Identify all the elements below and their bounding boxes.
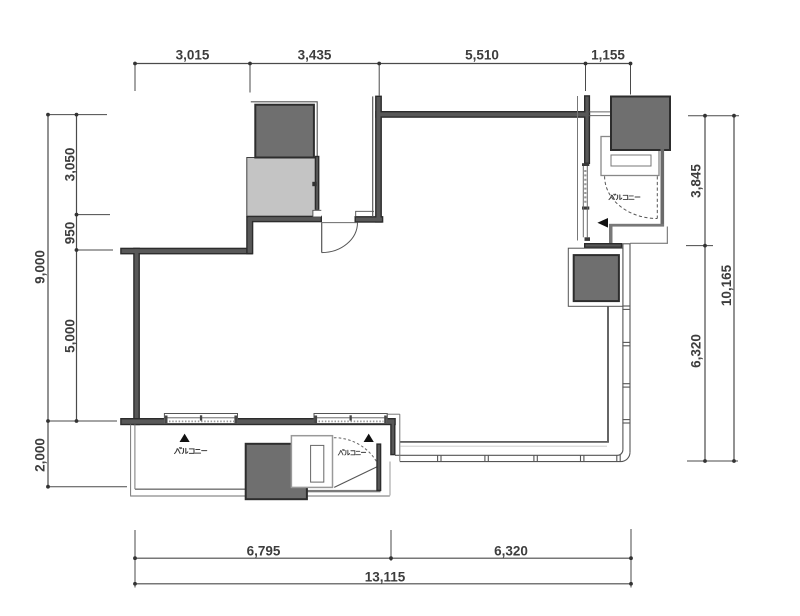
svg-text:3,845: 3,845 [689,164,704,198]
svg-text:5,510: 5,510 [465,48,499,63]
svg-text:3,015: 3,015 [176,48,210,63]
svg-text:3,435: 3,435 [298,48,332,63]
svg-text:9,000: 9,000 [32,250,47,284]
svg-text:10,165: 10,165 [719,264,734,306]
svg-text:3,050: 3,050 [63,148,78,182]
svg-text:6,320: 6,320 [689,334,704,368]
svg-text:6,320: 6,320 [494,544,528,559]
svg-text:5,000: 5,000 [63,319,78,353]
svg-text:2,000: 2,000 [32,438,47,472]
svg-text:6,795: 6,795 [247,544,281,559]
svg-text:950: 950 [63,222,78,245]
svg-text:1,155: 1,155 [591,48,625,63]
svg-text:13,115: 13,115 [365,569,406,584]
